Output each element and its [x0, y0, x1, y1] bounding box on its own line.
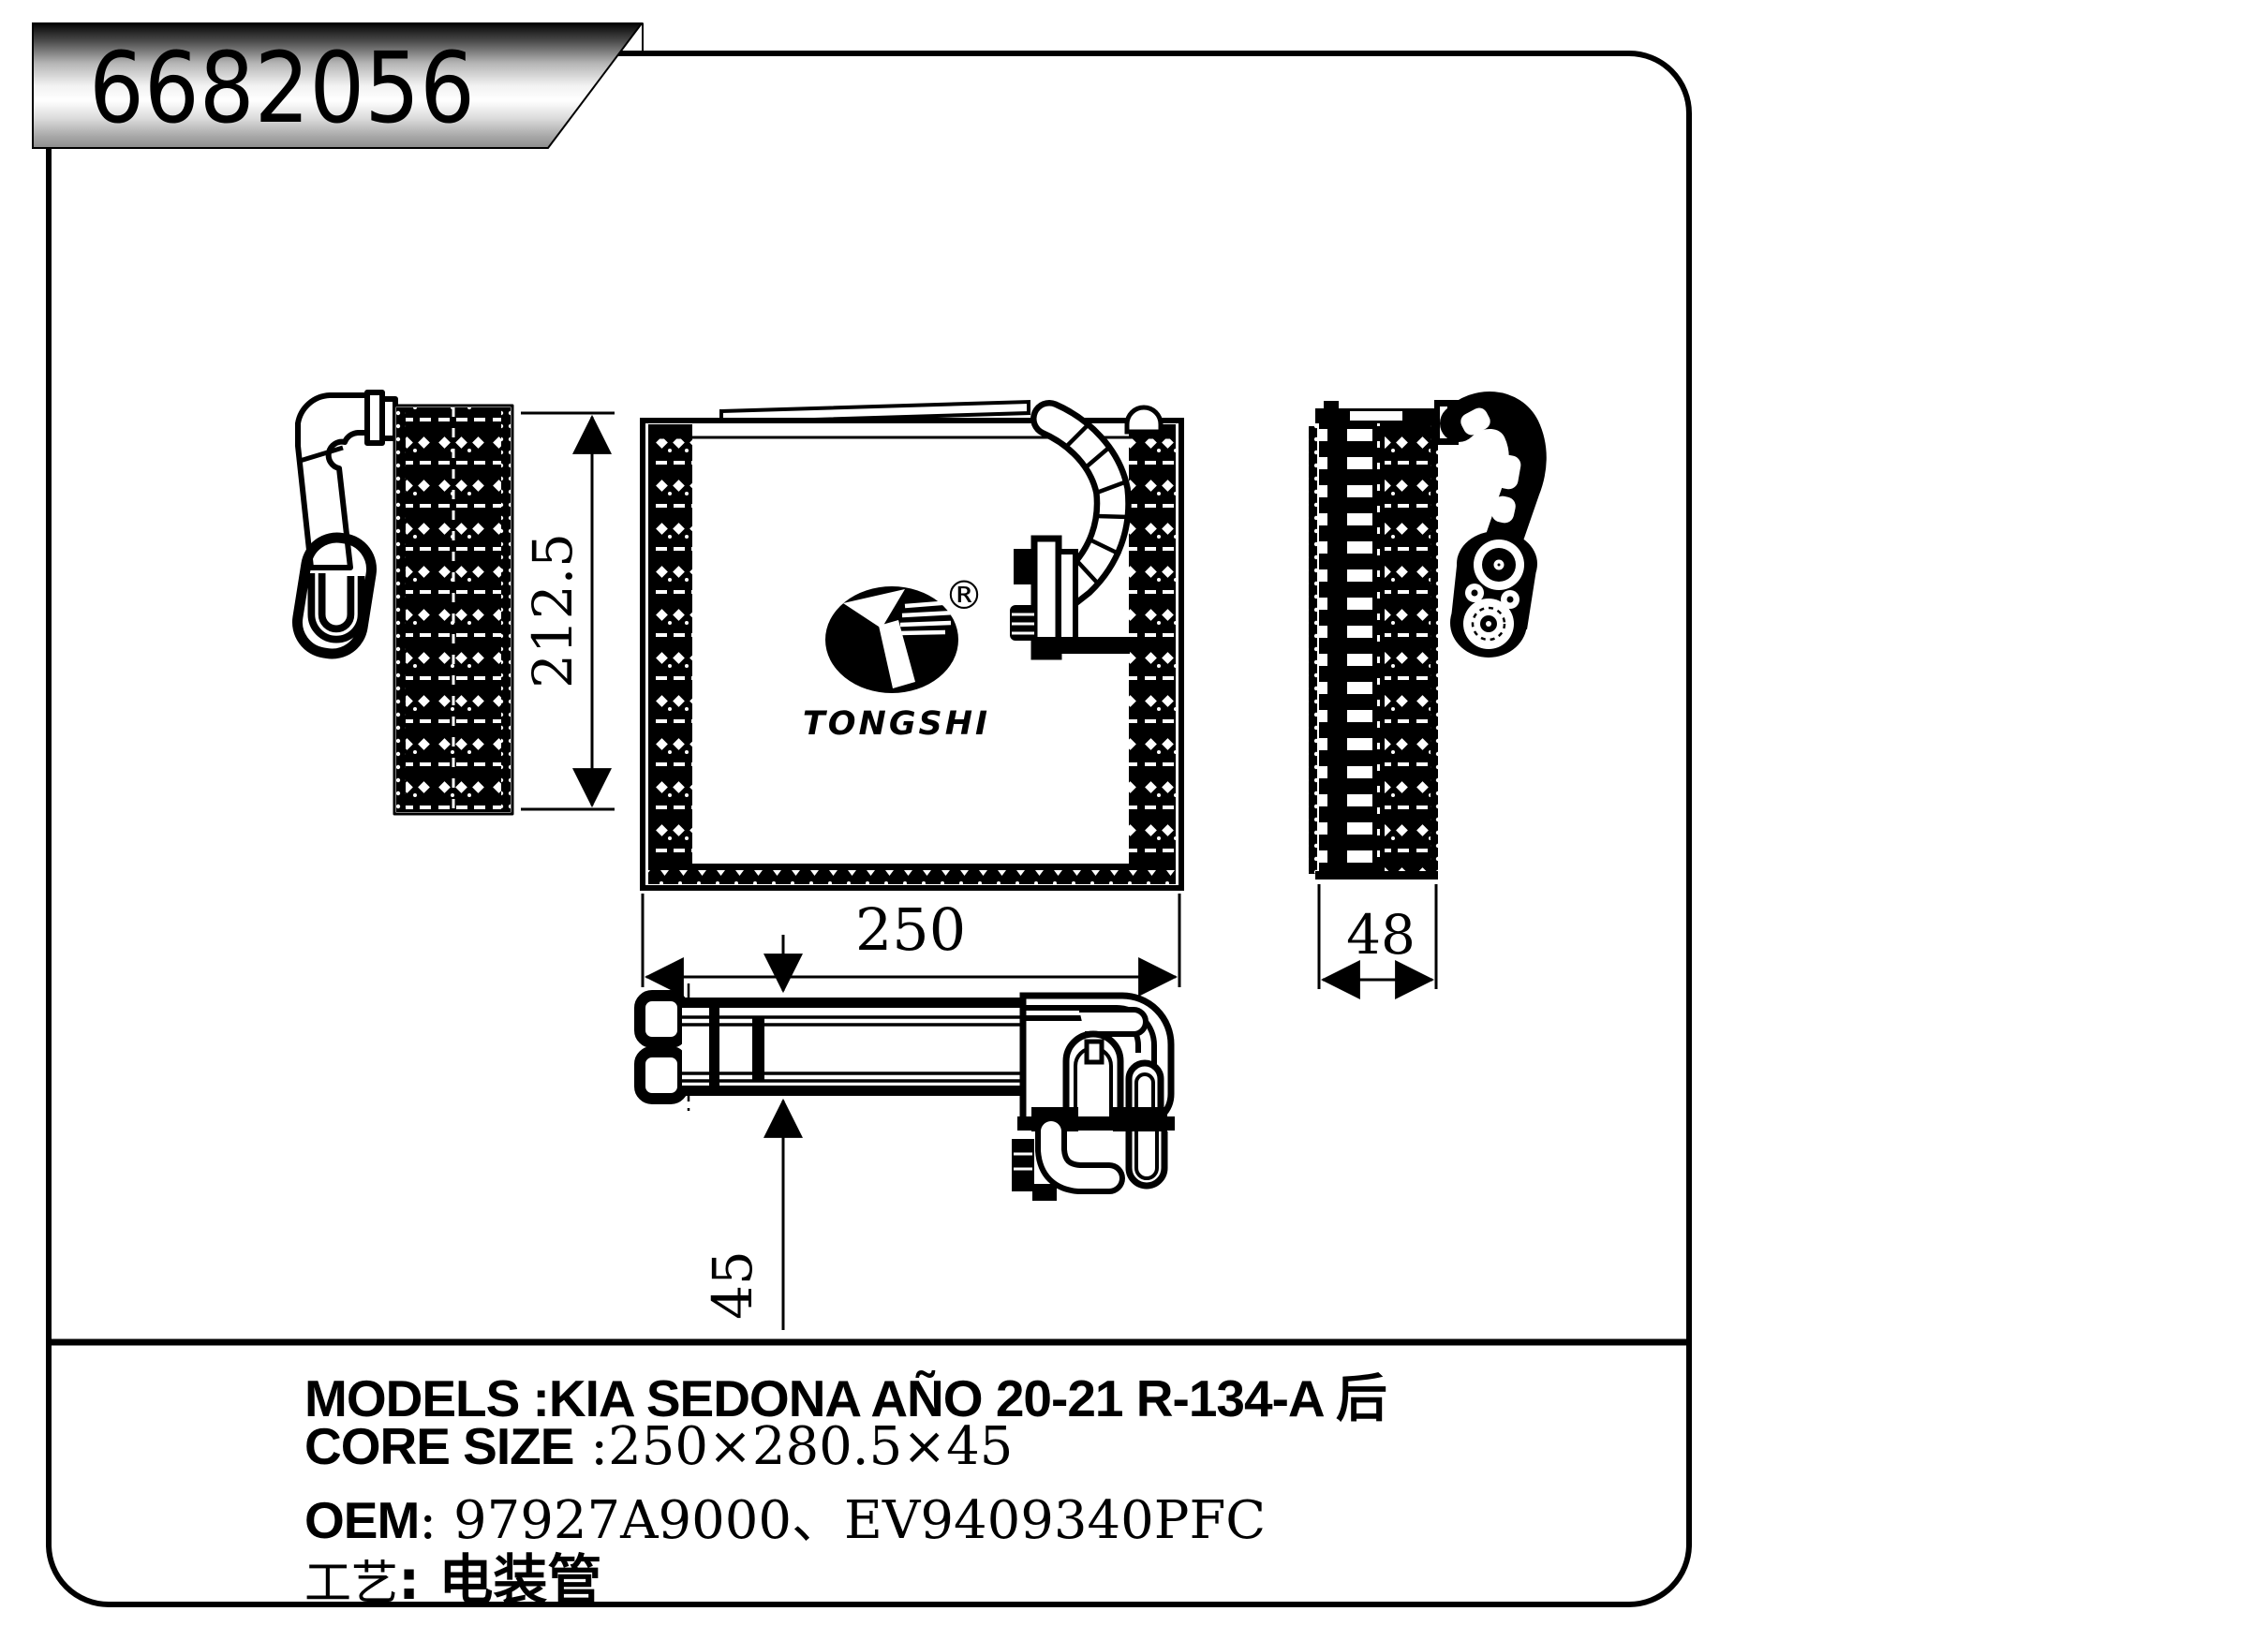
spec-row-process: 工艺: 电装管	[304, 1536, 601, 1615]
bottom-view: 45	[640, 935, 1175, 1330]
thickness-dim-value: 45	[701, 1250, 764, 1320]
right-view: 48	[1309, 400, 1537, 989]
spec-row-core-size: CORE SIZE :250×280.5×45	[304, 1416, 1013, 1477]
spec-label: 工艺	[304, 1556, 398, 1610]
registered-mark: ®	[944, 572, 984, 618]
spec-value: : 电装管	[398, 1548, 601, 1612]
depth-dim-value: 48	[1346, 903, 1416, 967]
bottom-view-body	[640, 983, 1023, 1111]
height-dim-value: 212.5	[521, 533, 585, 688]
left-view-pipe	[293, 392, 395, 658]
part-number-label: 6682056	[89, 31, 475, 145]
part-number-banner: 6682056	[33, 23, 643, 148]
right-view-flange	[1450, 531, 1537, 658]
right-view-core	[1309, 401, 1438, 880]
bottom-view-pipe-assembly	[1012, 996, 1175, 1201]
width-dim-value: 250	[855, 895, 966, 964]
spec-value: :250×280.5×45	[573, 1416, 1013, 1477]
left-view-core	[394, 406, 512, 814]
spec-label: CORE SIZE	[304, 1417, 573, 1475]
right-view-pipe	[1434, 400, 1528, 538]
left-view: 212.5	[293, 392, 615, 814]
page: 6682056 212.5	[0, 0, 2268, 1626]
brand-logo	[825, 586, 958, 693]
front-view: ® TONGSHI	[643, 402, 1181, 987]
brand-name: TONGSHI	[803, 705, 990, 743]
